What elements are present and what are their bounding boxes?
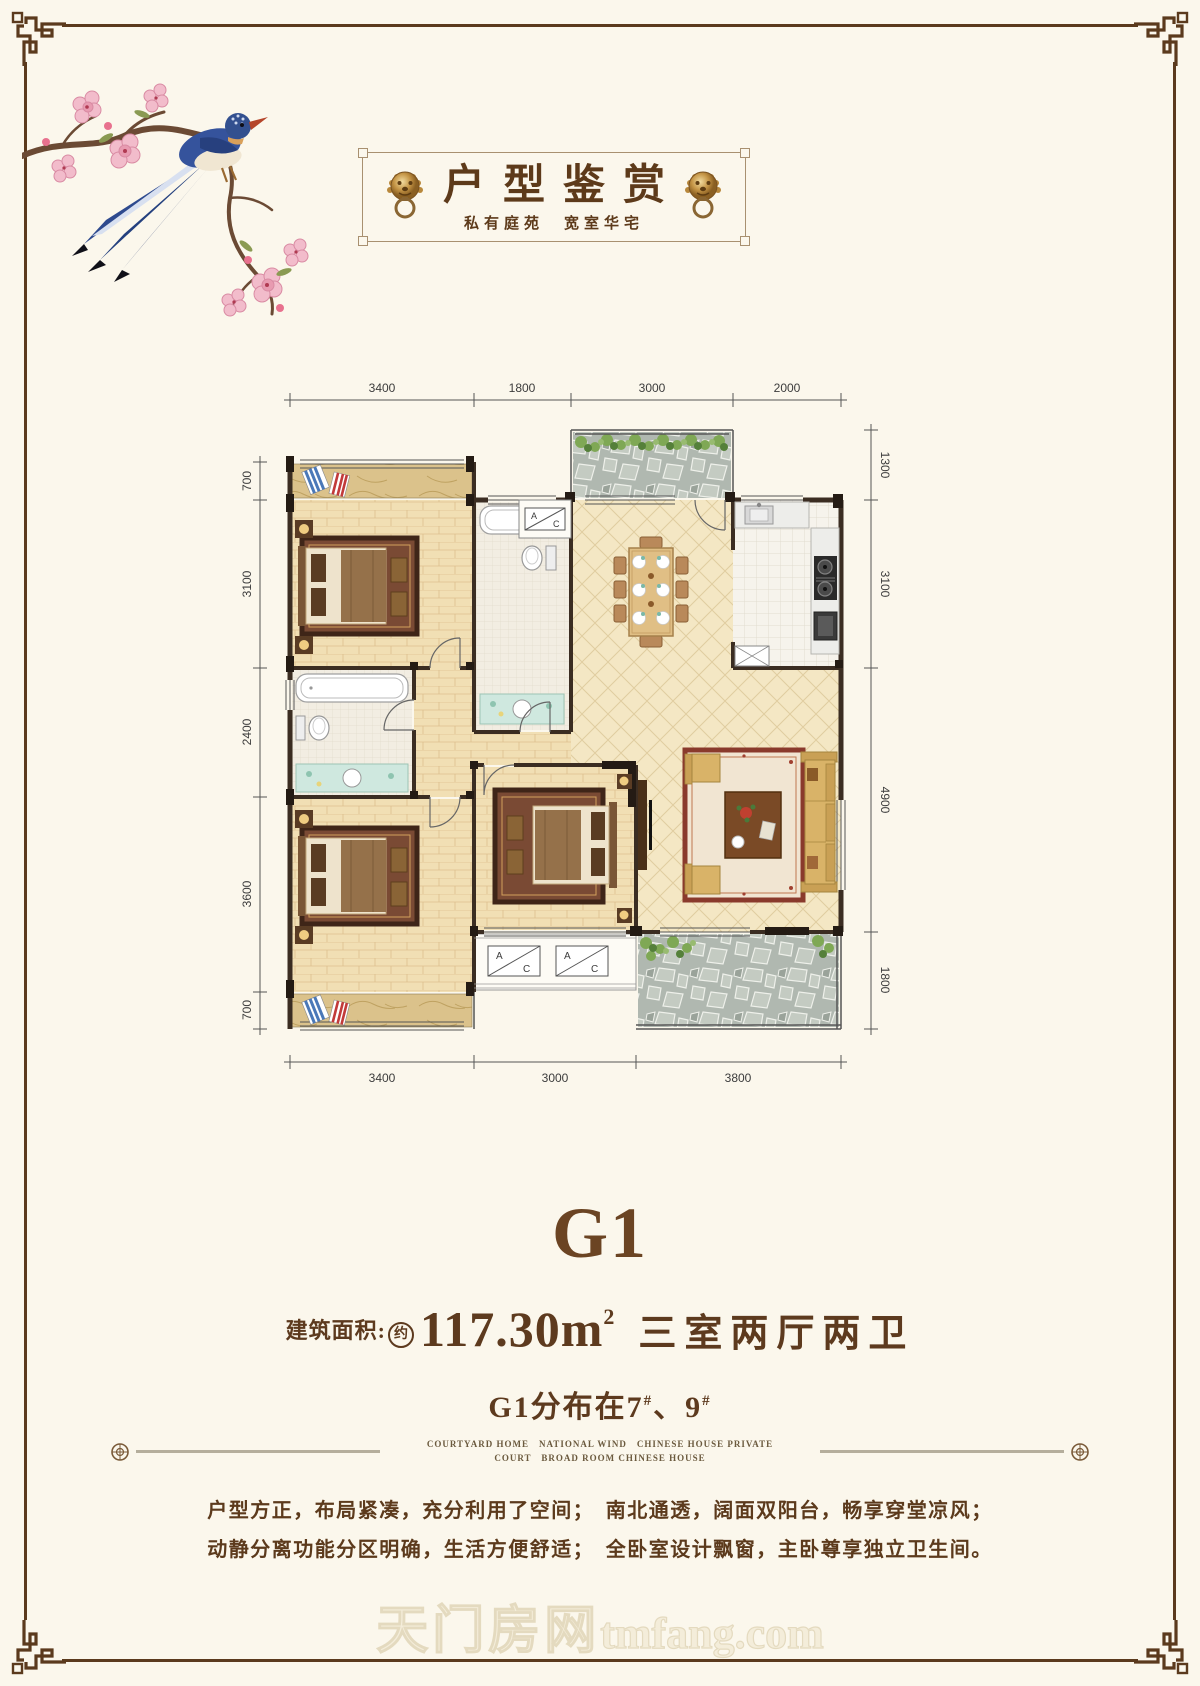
description-line1: 户型方正，布局紧凑，充分利用了空间； 南北通透，阔面双阳台，畅享穿堂凉风； [0,1492,1200,1531]
poster-page: 户型鉴赏 私有庭苑 宽室华宅 [0,0,1200,1686]
ac-label: A [564,951,571,962]
ac-label: C [591,964,598,975]
ac-label: A [496,951,503,962]
watermark: 天门房网tmfang.com [0,1588,1200,1663]
distribution-prefix: G1分布在7 [488,1391,643,1424]
lion-knocker-icon [383,169,427,221]
floorplan: A C A C A C [205,350,965,1110]
ac-label: C [523,964,530,975]
area-superscript: 2 [603,1304,614,1329]
frame-corner-ornament-icon [1134,10,1190,66]
dim-label: 1300 [878,452,892,479]
bedroom-2 [295,810,417,1025]
area-label: 建筑面积: [286,1318,386,1343]
distribution-mid: 、9 [653,1391,702,1424]
dim-label: 700 [240,471,254,491]
dim-label: 700 [240,1000,254,1020]
dim-label: 4900 [878,787,892,814]
dim-label: 3100 [878,571,892,598]
bird-blossom-painting [22,38,332,338]
dim-label: 3000 [639,381,666,395]
hash-superscript: # [702,1393,712,1409]
description: 户型方正，布局紧凑，充分利用了空间； 南北通透，阔面双阳台，畅享穿堂凉风； 动静… [0,1492,1200,1570]
room-layout: 三室两厅两卫 [638,1313,914,1355]
dim-label: 3100 [240,570,254,597]
ac-label: A [531,511,537,521]
divider-line [136,1450,380,1453]
divider-line [820,1450,1064,1453]
dim-label: 3400 [369,1071,396,1085]
knot-ornament-icon [110,1440,130,1464]
divider-text-line1: COURTYARD HOME NATIONAL WIND CHINESE HOU… [380,1438,820,1452]
watermark-en: tmfang.com [600,1609,824,1658]
distribution-line: G1分布在7#、9# [0,1382,1200,1426]
lion-knocker-icon [681,169,725,221]
frame-top [62,24,1138,27]
banner-corner [358,236,368,246]
unit-name: G1 [0,1192,1200,1275]
knot-ornament-icon [1070,1440,1090,1464]
dim-label: 3400 [369,381,396,395]
dim-label: 3800 [725,1071,752,1085]
title-banner: 户型鉴赏 私有庭苑 宽室华宅 [362,152,746,242]
ac-label: C [553,519,560,529]
watermark-cn: 天门房网 [376,1603,600,1660]
blossoms [42,84,308,316]
banner-corner [740,236,750,246]
dim-label: 2000 [774,381,801,395]
hash-superscript: # [644,1393,654,1409]
banner-corner [358,148,368,158]
area-approx-badge: 约 [388,1322,414,1348]
divider: COURTYARD HOME NATIONAL WIND CHINESE HOU… [104,1438,1096,1466]
dim-label: 1800 [878,967,892,994]
unit-area-line: 建筑面积:约117.30m2三室两厅两卫 [0,1300,1200,1358]
divider-text-line2: COURT BROAD ROOM CHINESE HOUSE [380,1452,820,1466]
dim-label: 2400 [240,718,254,745]
banner-corner [740,148,750,158]
divider-text: COURTYARD HOME NATIONAL WIND CHINESE HOU… [380,1438,820,1466]
area-value: 117.30m [420,1301,603,1357]
dim-label: 3000 [542,1071,569,1085]
dim-label: 3600 [240,880,254,907]
dim-label: 1800 [509,381,536,395]
description-line2: 动静分离功能分区明确，生活方便舒适； 全卧室设计飘窗，主卧尊享独立卫生间。 [0,1531,1200,1570]
